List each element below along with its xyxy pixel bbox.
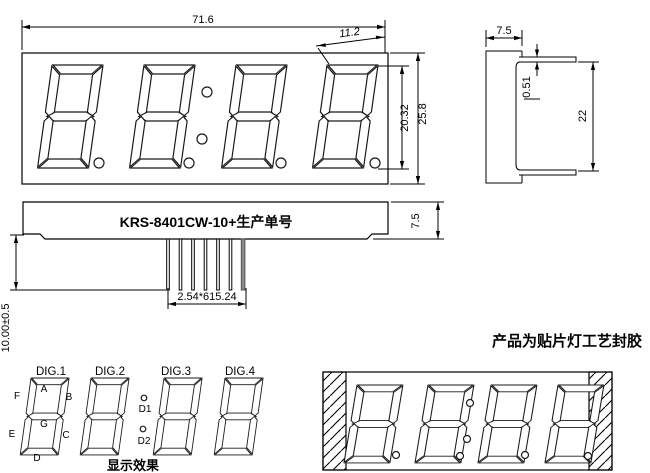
dim-total-width: 71.6 (22, 14, 385, 53)
decimal-point-4 (370, 158, 380, 168)
dim-pin-span: 22 (577, 62, 599, 171)
dim-body-thickness-label: 7.5 (410, 213, 422, 228)
segment-digit-4 (214, 378, 263, 455)
front-view: 71.6 11.2 20.32 25.8 (22, 14, 429, 184)
pin-2 (179, 239, 182, 290)
pin-6 (229, 239, 232, 290)
segment-label-d: D (33, 453, 40, 464)
dim-total-width-label: 71.6 (192, 14, 213, 26)
package-colon-lower (464, 436, 471, 443)
dim-pin-pitch: 2.54*615.24 (168, 288, 246, 309)
back-view: KRS-8401CW-10+生产单号 7.5 10.00±0. (0, 202, 444, 352)
decimal-point-1 (94, 158, 104, 168)
digit-label-3: DIG.3 (161, 366, 191, 378)
package-dp-3 (522, 452, 529, 459)
datasheet-drawing: 71.6 11.2 20.32 25.8 (0, 0, 650, 473)
segment-digit-2 (80, 378, 129, 455)
part-number-label: KRS-8401CW-10+生产单号 (120, 214, 293, 230)
pin-4 (204, 239, 207, 290)
dot-label-d2: D2 (138, 436, 151, 447)
side-view: 7.5 0.51 22 (486, 25, 599, 183)
package-dp-1 (393, 452, 400, 459)
segment-label-g: G (40, 419, 48, 430)
pin-3 (192, 239, 195, 290)
dim-total-height-label: 25.8 (417, 103, 429, 124)
dim-pin-length-label: 10.00±0.5 (0, 304, 12, 353)
segment-diagram-caption: 显示效果 (107, 458, 159, 473)
pin-5 (217, 239, 220, 290)
hatch-band-left (323, 372, 346, 470)
dim-digit-width-label: 11.2 (339, 26, 361, 41)
dim-pin-span-label: 22 (577, 110, 589, 122)
segment-label-e: E (9, 429, 16, 440)
dim-pin-length: 10.00±0.5 (0, 235, 166, 352)
dot-label-d1: D1 (139, 404, 152, 415)
pin-1 (167, 239, 170, 290)
digit-label-1: DIG.1 (36, 366, 66, 378)
pin-7 (241, 239, 245, 290)
side-pin-top (519, 57, 576, 62)
segment-label-c: C (62, 430, 69, 441)
side-body-outline (486, 51, 522, 183)
colon-dot-upper (202, 87, 212, 97)
package-view-caption: 产品为贴片灯工艺封胶 (492, 332, 642, 350)
dim-pin-thickness: 0.51 (521, 44, 540, 99)
package-colon-upper (467, 400, 474, 407)
segment-label-b: B (66, 392, 73, 403)
side-body-profile (516, 62, 520, 170)
colon-dot-lower (197, 134, 207, 144)
dim-depth: 7.5 (486, 25, 522, 47)
dim-depth-label: 7.5 (496, 25, 511, 37)
digit-label-2: DIG.2 (95, 366, 125, 378)
colon-dot-d2 (140, 426, 146, 432)
digit-label-4: DIG.4 (225, 366, 256, 378)
dim-pin-pitch-label: 2.54*615.24 (177, 291, 236, 303)
package-dp-4 (585, 453, 592, 460)
decimal-point-3 (276, 158, 286, 168)
segment-label-f: F (14, 391, 20, 402)
decimal-point-2 (184, 158, 194, 168)
segment-label-a: A (41, 384, 48, 395)
colon-dot-d1 (141, 395, 147, 401)
dim-pin-thickness-label: 0.51 (521, 76, 533, 97)
package-dp-2 (457, 453, 464, 460)
segment-digit-3 (153, 378, 202, 455)
dim-digit-height-label: 20.32 (399, 104, 411, 132)
pins (167, 239, 245, 290)
side-pin-bottom (519, 170, 576, 175)
segment-diagram: DIG.1 DIG.2 DIG.3 DIG.4 A F B G E C D D1… (9, 366, 263, 473)
package-view: 产品为贴片灯工艺封胶 (323, 332, 642, 470)
